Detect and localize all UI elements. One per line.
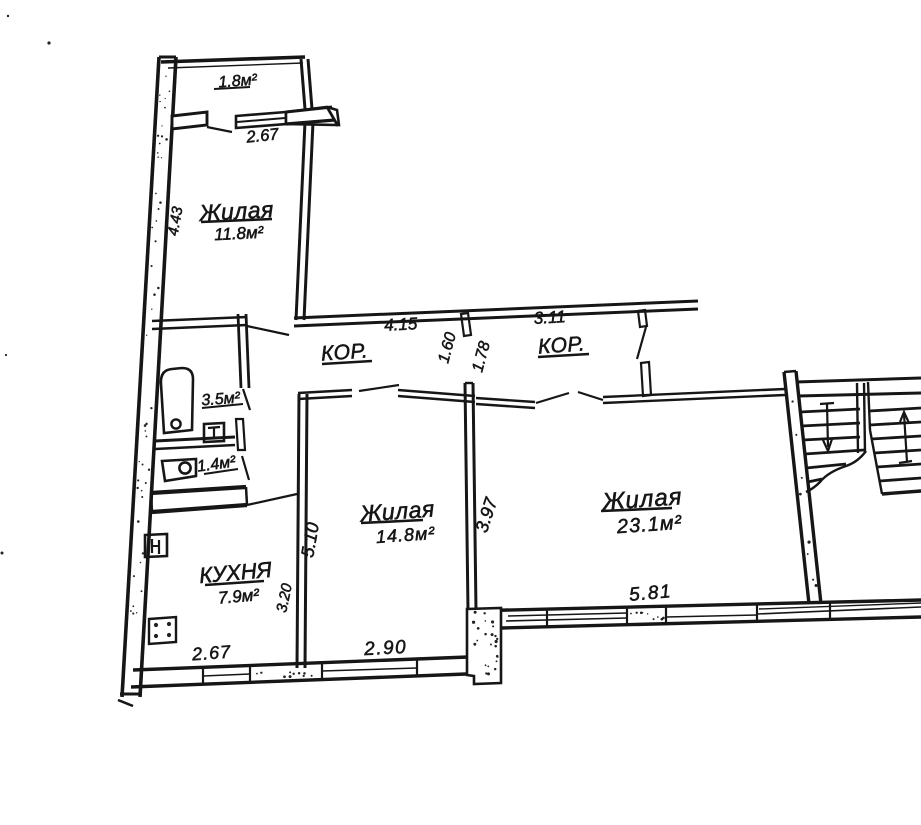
svg-text:5.81: 5.81 xyxy=(628,581,673,606)
svg-text:2.67: 2.67 xyxy=(245,125,281,146)
svg-text:7.9м²: 7.9м² xyxy=(217,585,261,608)
svg-text:4.15: 4.15 xyxy=(384,314,419,335)
svg-text:2.90: 2.90 xyxy=(363,637,408,660)
svg-text:2.67: 2.67 xyxy=(190,642,231,665)
svg-text:3.11: 3.11 xyxy=(533,307,566,328)
svg-text:11.8м²: 11.8м² xyxy=(214,223,265,245)
svg-text:14.8м²: 14.8м² xyxy=(375,523,436,547)
svg-text:23.1м²: 23.1м² xyxy=(615,512,683,539)
